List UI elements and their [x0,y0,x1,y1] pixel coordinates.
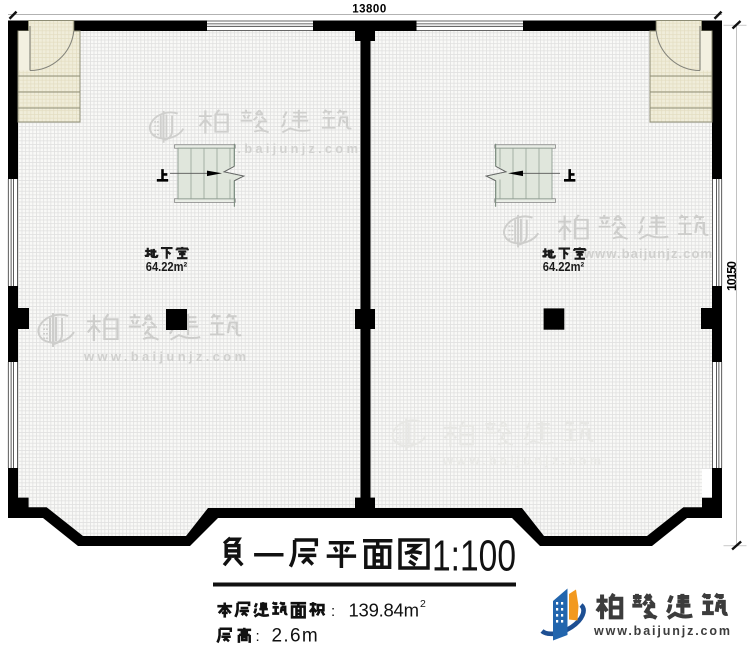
svg-text:13800: 13800 [352,4,386,16]
svg-text:www.baijunjz.com: www.baijunjz.com [583,246,712,261]
svg-text::: : [256,628,260,645]
svg-text:1:100: 1:100 [432,532,516,581]
svg-text:10150: 10150 [725,261,739,291]
svg-text:2.6m: 2.6m [272,626,319,647]
svg-text:64.22m²: 64.22m² [543,259,585,274]
svg-text::: : [331,603,335,620]
svg-text:2: 2 [420,598,426,610]
svg-text:64.22m²: 64.22m² [146,259,188,274]
svg-text:139.84m: 139.84m [349,600,420,621]
